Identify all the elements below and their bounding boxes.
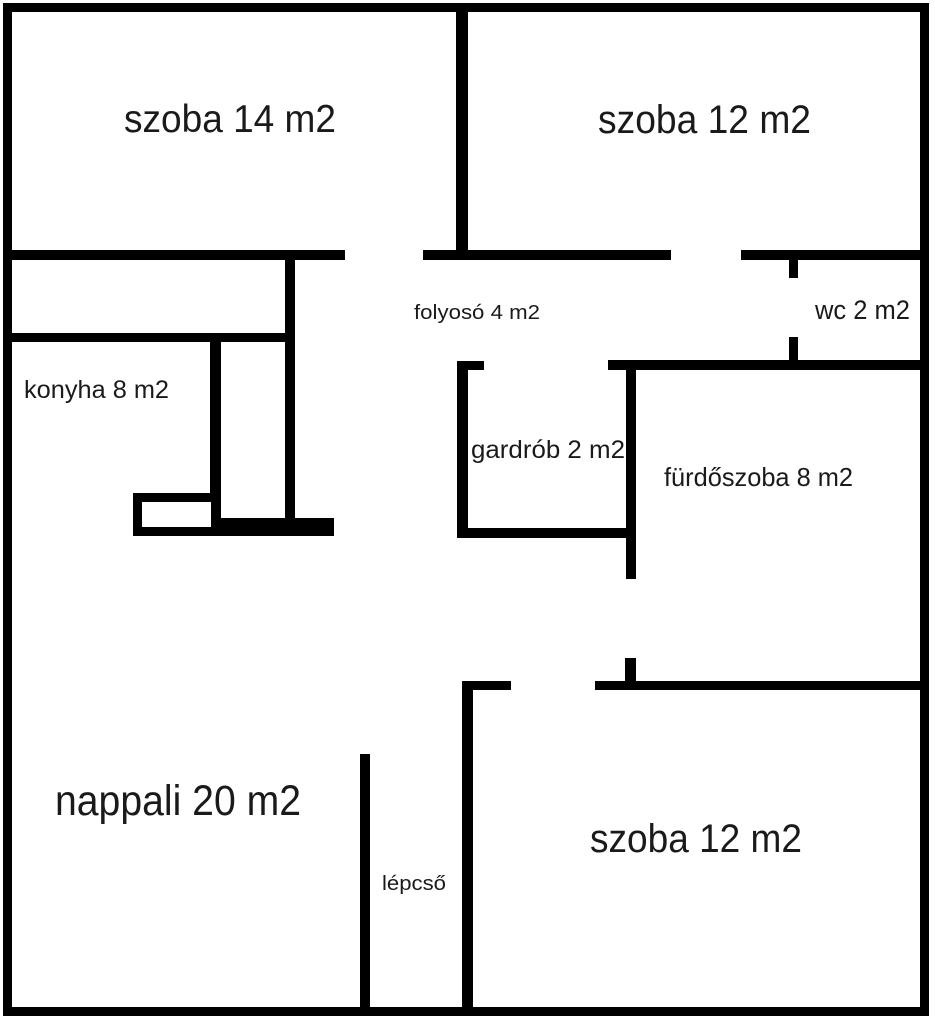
svg-text:konyha 8 m2: konyha 8 m2 (24, 376, 169, 404)
svg-text:nappali 20 m2: nappali 20 m2 (55, 777, 301, 825)
svg-text:gardrób 2 m2: gardrób 2 m2 (471, 436, 625, 464)
svg-text:lépcső: lépcső (382, 873, 446, 895)
svg-text:fürdőszoba 8 m2: fürdőszoba 8 m2 (664, 462, 853, 492)
svg-text:szoba 14 m2: szoba 14 m2 (124, 98, 336, 141)
svg-text:szoba 12 m2: szoba 12 m2 (590, 817, 802, 861)
svg-text:szoba 12 m2: szoba 12 m2 (598, 98, 811, 142)
svg-text:folyosó 4 m2: folyosó 4 m2 (414, 302, 540, 324)
svg-text:wc 2 m2: wc 2 m2 (814, 295, 910, 325)
